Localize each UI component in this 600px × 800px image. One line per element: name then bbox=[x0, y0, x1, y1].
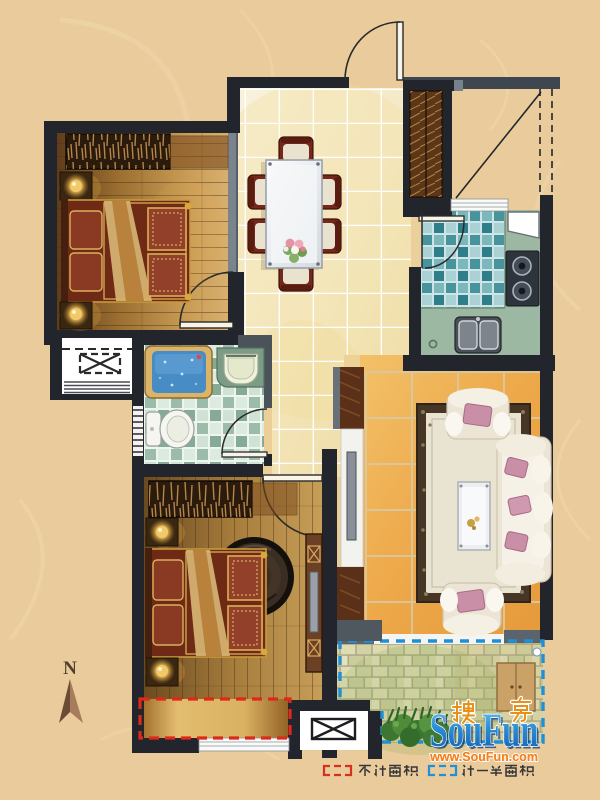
svg-text:SouFun: SouFun bbox=[430, 703, 539, 757]
svg-text:www.SouFun.com: www.SouFun.com bbox=[429, 750, 538, 764]
svg-text:N: N bbox=[63, 658, 77, 679]
